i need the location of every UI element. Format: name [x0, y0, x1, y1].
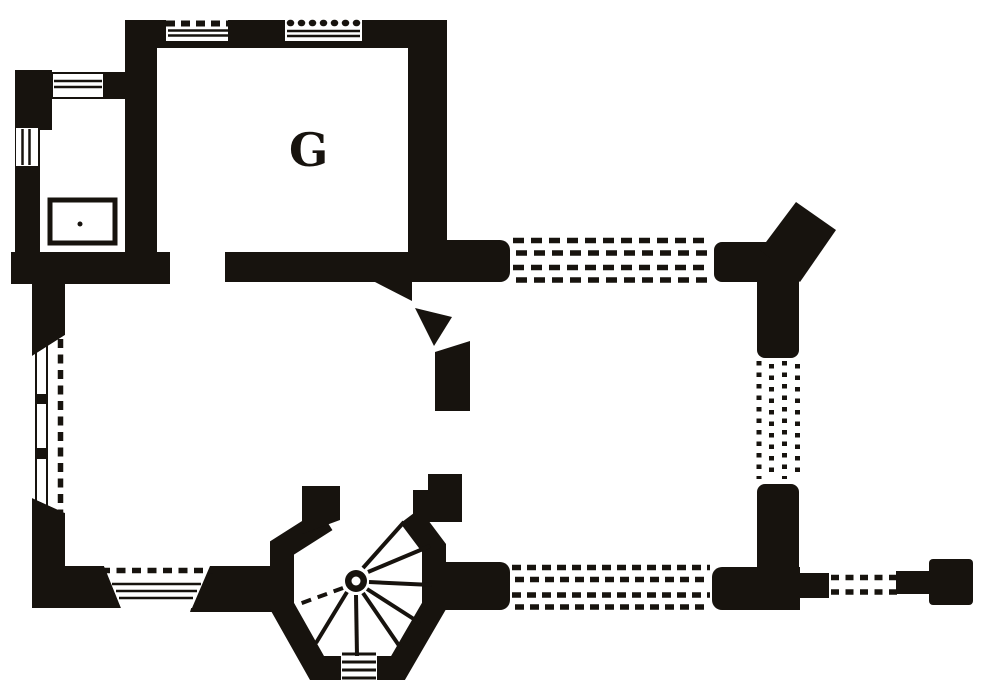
door-jamb-tooth [375, 282, 412, 301]
newel-core [352, 577, 361, 586]
conjectural-walls [512, 241, 897, 608]
se-wall-junction [408, 240, 510, 282]
nw-room-west-window-opening [16, 128, 38, 166]
stair-tower-stub-shoulder [413, 490, 431, 522]
se-pier [757, 484, 799, 570]
ne-fragment-south-arm [757, 258, 799, 358]
floor-plan-drawing: G [0, 0, 1000, 693]
stair-tread [316, 592, 347, 643]
stair-tread [367, 589, 420, 623]
se-corner-step [798, 573, 829, 598]
room-g-east-wall [408, 20, 447, 252]
spiral-stair-tower [282, 474, 510, 691]
far-east-bar [896, 571, 932, 594]
nw-room-south-wall [11, 252, 170, 284]
window-mullion-block [37, 448, 47, 459]
stair-tower-north-west-stub [302, 486, 340, 534]
stair-tower-north-east-stub [428, 474, 462, 522]
nw-room-north-window-opening [53, 74, 103, 97]
floor-plan: G [0, 0, 1000, 693]
masonry-walls [11, 20, 973, 612]
hearth-recess [50, 200, 115, 243]
stair-tread [363, 593, 400, 647]
stair-tread-dashed [291, 588, 343, 607]
hearth-mark [78, 222, 83, 227]
door-pier [435, 341, 470, 411]
room-g-south-wall [225, 252, 412, 282]
stair-tread [356, 595, 357, 656]
door-reveal-chip [415, 308, 452, 346]
far-east-block [929, 559, 973, 605]
se-corner-block [712, 567, 800, 610]
window-mullion-block [37, 394, 47, 404]
stair-tower-east-arm [444, 562, 510, 610]
room-label-g: G [289, 123, 328, 177]
room-g-west-wall [125, 20, 157, 252]
